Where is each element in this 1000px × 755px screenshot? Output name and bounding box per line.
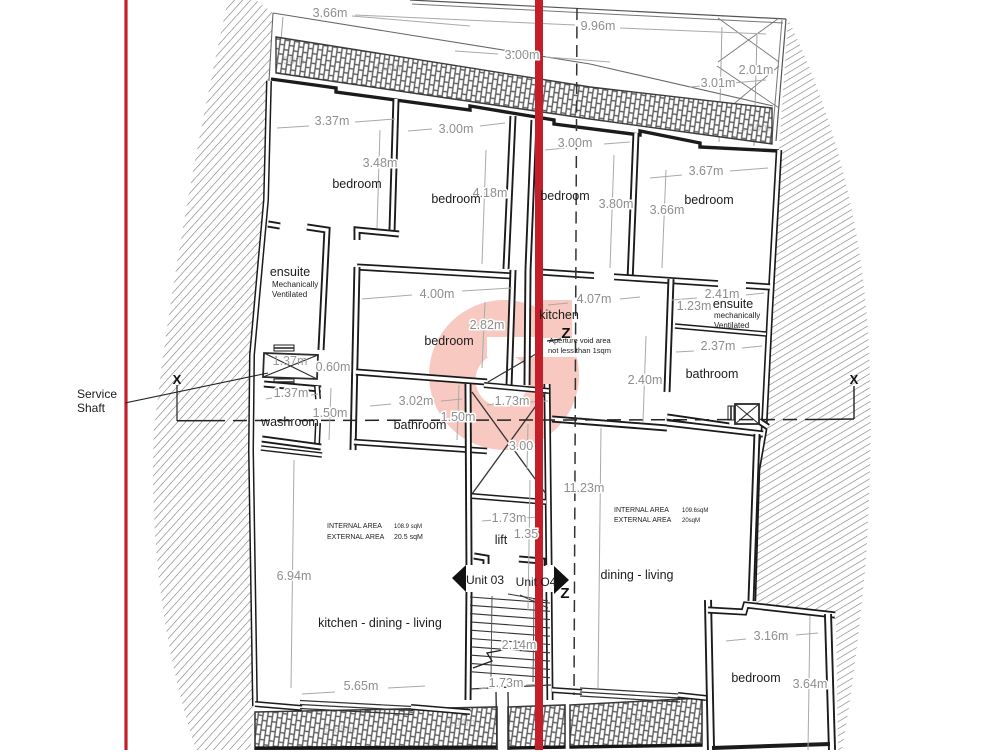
svg-text:Shaft: Shaft: [77, 401, 106, 415]
svg-text:kitchen - dining - living: kitchen - dining - living: [318, 616, 442, 630]
svg-text:1.50m: 1.50m: [740, 122, 771, 134]
svg-text:bathroom: bathroom: [394, 418, 447, 432]
svg-text:2.14m: 2.14m: [502, 638, 537, 652]
svg-text:3.01m: 3.01m: [701, 76, 736, 90]
svg-text:1.50m: 1.50m: [625, 713, 656, 725]
svg-text:EXTERNAL AREA: EXTERNAL AREA: [614, 517, 672, 524]
svg-text:3.00: 3.00: [509, 439, 533, 453]
svg-text:Unit 03: Unit 03: [466, 573, 504, 587]
svg-text:Ventilated: Ventilated: [714, 321, 749, 330]
svg-text:2.37m: 2.37m: [701, 339, 736, 353]
svg-text:bedroom: bedroom: [424, 334, 473, 348]
svg-text:9.96m: 9.96m: [581, 19, 616, 33]
svg-text:3.00m: 3.00m: [505, 48, 540, 62]
svg-text:Service: Service: [77, 387, 117, 401]
svg-text:1.50m: 1.50m: [274, 55, 305, 67]
svg-text:mechanically: mechanically: [714, 311, 760, 320]
svg-text:bedroom: bedroom: [431, 192, 480, 206]
svg-text:2.01m: 2.01m: [739, 63, 774, 77]
svg-text:INTERNAL AREA: INTERNAL AREA: [327, 523, 382, 530]
svg-text:bedroom: bedroom: [731, 671, 780, 685]
svg-text:1.35: 1.35: [514, 527, 538, 541]
svg-text:EXTERNAL AREA: EXTERNAL AREA: [327, 534, 385, 541]
svg-text:ensuite: ensuite: [270, 265, 310, 279]
svg-text:108.9 sqM: 108.9 sqM: [394, 524, 422, 530]
svg-text:20sqM: 20sqM: [682, 518, 700, 524]
svg-text:3.02m: 3.02m: [399, 394, 434, 408]
svg-text:X: X: [173, 372, 182, 387]
svg-text:washroom: washroom: [260, 415, 319, 429]
svg-text:1.73m: 1.73m: [489, 676, 524, 690]
svg-text:6.94m: 6.94m: [277, 569, 312, 583]
svg-text:Z: Z: [560, 585, 569, 602]
svg-text:Ventilated: Ventilated: [272, 290, 307, 299]
svg-text:ensuite: ensuite: [713, 297, 753, 311]
svg-text:3.16m: 3.16m: [754, 629, 789, 643]
svg-text:lift: lift: [495, 533, 508, 547]
svg-text:3.48m: 3.48m: [363, 156, 398, 170]
svg-text:2.40m: 2.40m: [628, 373, 663, 387]
svg-text:bedroom: bedroom: [332, 177, 381, 191]
svg-text:3.00m: 3.00m: [558, 136, 593, 150]
svg-text:Mechanically: Mechanically: [272, 280, 318, 289]
svg-text:3.64m: 3.64m: [793, 677, 828, 691]
svg-text:INTERNAL AREA: INTERNAL AREA: [614, 507, 669, 514]
svg-text:X: X: [850, 372, 859, 387]
svg-text:kitchen: kitchen: [539, 308, 579, 322]
svg-text:5.65m: 5.65m: [344, 679, 379, 693]
svg-text:3.66m: 3.66m: [650, 203, 685, 217]
svg-text:4.00m: 4.00m: [374, 62, 405, 74]
svg-text:2.82m: 2.82m: [470, 318, 505, 332]
svg-text:1.37m: 1.37m: [273, 354, 308, 368]
svg-text:5.65m: 5.65m: [325, 724, 356, 736]
svg-text:0.60m: 0.60m: [316, 360, 351, 374]
svg-text:Aperture void area: Aperture void area: [549, 336, 612, 345]
svg-text:3.66m: 3.66m: [313, 6, 348, 20]
svg-text:1.73m: 1.73m: [492, 511, 527, 525]
svg-text:1.37m: 1.37m: [274, 386, 309, 400]
svg-text:Unit O4: Unit O4: [516, 575, 557, 589]
svg-text:3.67m: 3.67m: [689, 164, 724, 178]
svg-text:bedroom: bedroom: [540, 189, 589, 203]
svg-text:1.73m: 1.73m: [495, 394, 530, 408]
svg-text:dining - living: dining - living: [601, 568, 674, 582]
svg-text:3.00m: 3.00m: [439, 122, 474, 136]
svg-text:3.37m: 3.37m: [315, 114, 350, 128]
svg-text:4.00m: 4.00m: [420, 287, 455, 301]
svg-text:bedroom: bedroom: [684, 193, 733, 207]
svg-text:109.6sqM: 109.6sqM: [682, 508, 708, 514]
svg-text:bathroom: bathroom: [686, 367, 739, 381]
svg-text:11.23m: 11.23m: [564, 481, 605, 495]
svg-text:20.5 sqM: 20.5 sqM: [394, 534, 423, 541]
svg-text:2.04m: 2.04m: [445, 717, 476, 729]
svg-text:3.80m: 3.80m: [599, 197, 634, 211]
svg-text:4.07m: 4.07m: [577, 292, 612, 306]
svg-text:not less than 1sqm: not less than 1sqm: [548, 346, 611, 355]
svg-text:1.23m: 1.23m: [677, 299, 712, 313]
svg-text:Z: Z: [561, 325, 570, 342]
